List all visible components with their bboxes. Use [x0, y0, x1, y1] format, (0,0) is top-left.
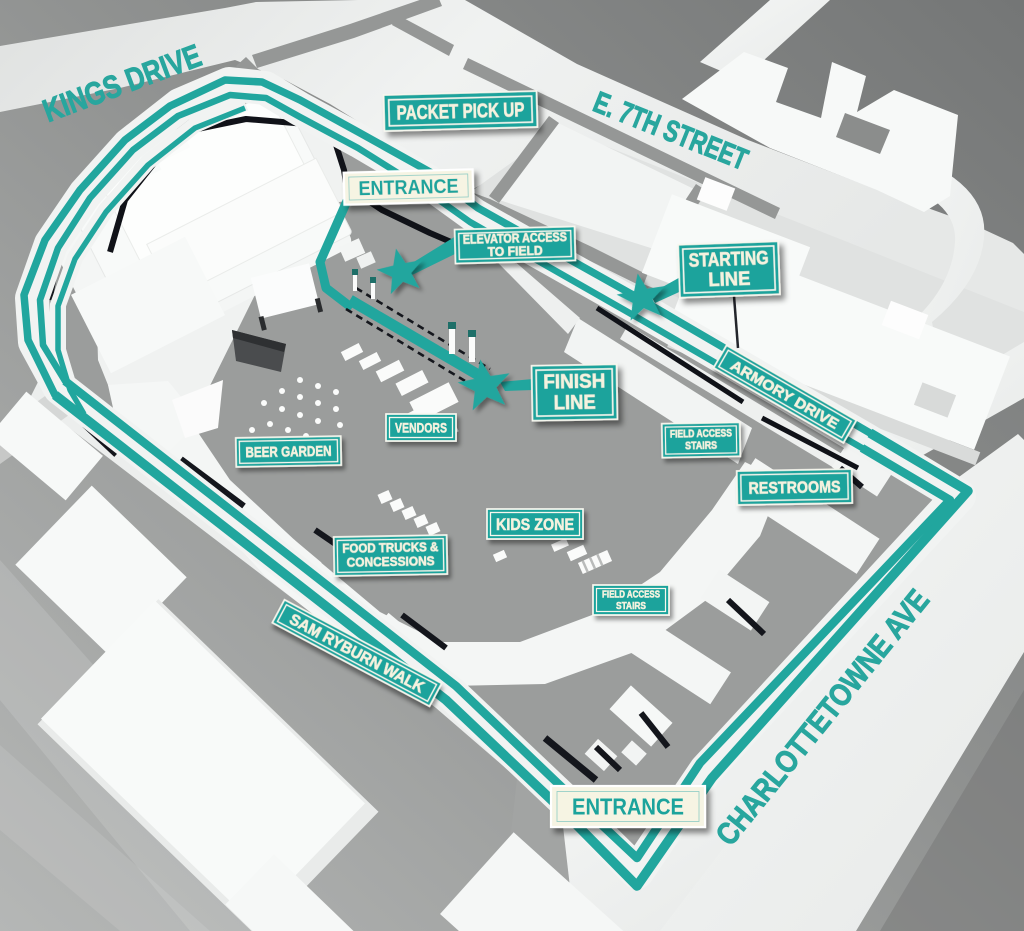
- svg-text:TO FIELD: TO FIELD: [487, 244, 542, 259]
- svg-text:VENDORS: VENDORS: [395, 420, 447, 436]
- svg-text:STAIRS: STAIRS: [685, 440, 717, 453]
- svg-text:STAIRS: STAIRS: [616, 600, 646, 612]
- svg-text:RESTROOMS: RESTROOMS: [748, 478, 840, 498]
- svg-text:PACKET PICK UP: PACKET PICK UP: [396, 99, 525, 124]
- svg-text:BEER GARDEN: BEER GARDEN: [245, 444, 331, 461]
- svg-text:LINE: LINE: [553, 392, 595, 415]
- svg-text:FINISH: FINISH: [543, 370, 605, 393]
- svg-text:FIELD ACCESS: FIELD ACCESS: [602, 589, 660, 601]
- svg-text:ENTRANCE: ENTRANCE: [358, 176, 459, 201]
- svg-text:KIDS ZONE: KIDS ZONE: [496, 516, 574, 534]
- svg-text:ENTRANCE: ENTRANCE: [572, 794, 684, 820]
- svg-text:CONCESSIONS: CONCESSIONS: [346, 553, 435, 570]
- svg-text:LINE: LINE: [708, 268, 751, 291]
- svg-text:FIELD ACCESS: FIELD ACCESS: [670, 427, 732, 440]
